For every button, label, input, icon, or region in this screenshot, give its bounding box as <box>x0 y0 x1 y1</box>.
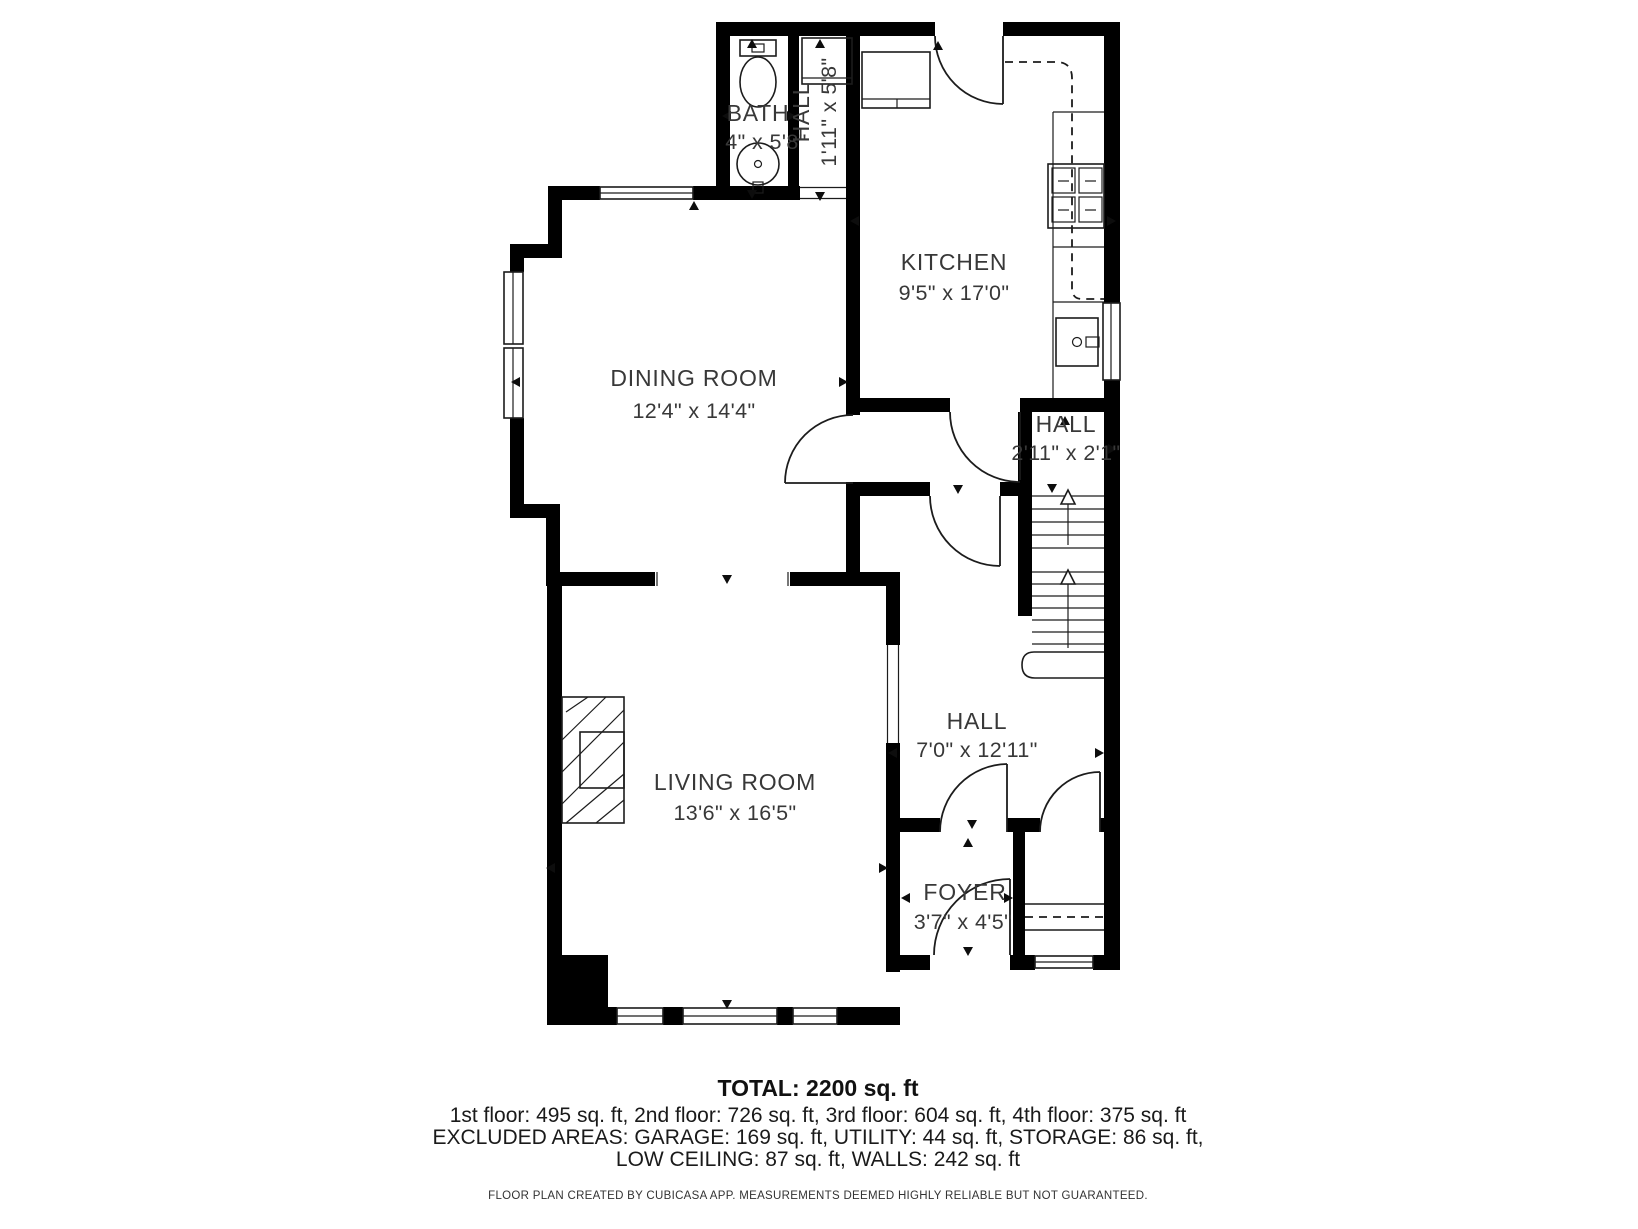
room-dims-upper-hall: 1'11" x 5'8" <box>817 57 841 166</box>
room-dims-dining: 12'4" x 14'4" <box>632 399 755 423</box>
room-dims-living: 13'6" x 16'5" <box>673 801 796 825</box>
summary-footer: FLOOR PLAN CREATED BY CUBICASA APP. MEAS… <box>488 1190 1148 1202</box>
room-dims-hall-main: 7'0" x 12'11" <box>916 738 1038 762</box>
summary-total: TOTAL: 2200 sq. ft <box>717 1075 918 1101</box>
summary-excluded-2: LOW CEILING: 87 sq. ft, WALLS: 242 sq. f… <box>616 1148 1020 1171</box>
window-living-bottom-left <box>617 1008 663 1024</box>
room-dims-foyer: 3'7" x 4'5" <box>914 910 1012 934</box>
room-label-upper-hall: HALL <box>788 82 814 143</box>
window-living-bottom-center <box>683 1008 777 1024</box>
room-label-hall-landing: HALL <box>1036 411 1097 437</box>
window-dining-left-upper <box>504 272 523 344</box>
page-background <box>0 0 1638 1229</box>
room-label-hall-main: HALL <box>947 708 1008 734</box>
summary-excluded-1: EXCLUDED AREAS: GARAGE: 169 sq. ft, UTIL… <box>432 1126 1203 1149</box>
room-label-bath: BATH <box>727 100 790 126</box>
room-label-dining: DINING ROOM <box>610 365 777 391</box>
floor-plan-page: BATH 4" x 5'8" HALL 1'11" x 5'8" KITCHEN… <box>0 0 1638 1229</box>
room-label-living: LIVING ROOM <box>654 769 816 795</box>
summary-floors: 1st floor: 495 sq. ft, 2nd floor: 726 sq… <box>450 1104 1187 1127</box>
window-living-bottom-right <box>793 1008 837 1024</box>
window-entry-bottom <box>1035 956 1093 968</box>
floor-plan-canvas: BATH 4" x 5'8" HALL 1'11" x 5'8" KITCHEN… <box>0 0 1638 1229</box>
room-dims-hall-landing: 2'11" x 2'1" <box>1011 441 1120 465</box>
window-dining-top <box>600 187 693 199</box>
room-dims-kitchen: 9'5" x 17'0" <box>899 281 1010 305</box>
room-label-foyer: FOYER <box>923 879 1006 905</box>
window-kitchen-right <box>1103 303 1120 380</box>
room-label-kitchen: KITCHEN <box>901 249 1008 275</box>
